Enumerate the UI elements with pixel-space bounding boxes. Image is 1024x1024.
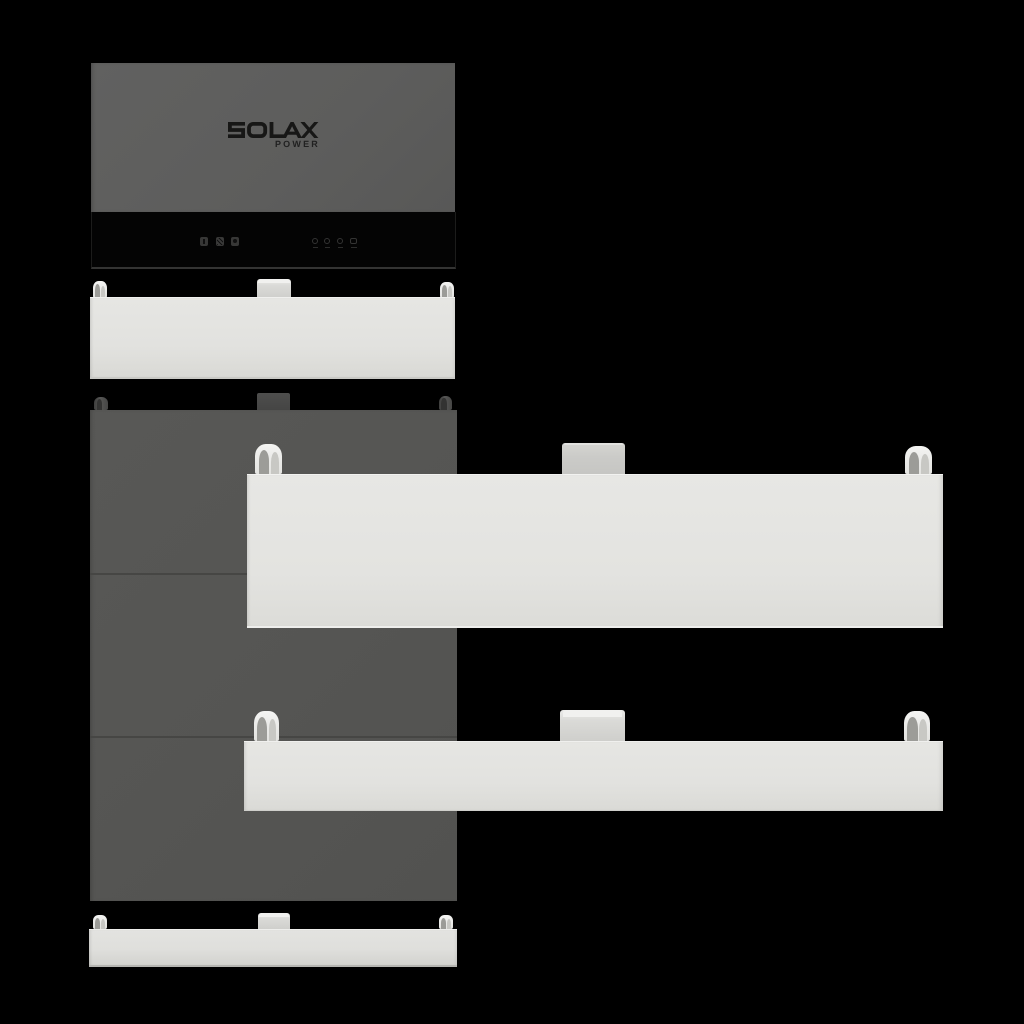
svg-text:POWER: POWER xyxy=(275,139,320,149)
